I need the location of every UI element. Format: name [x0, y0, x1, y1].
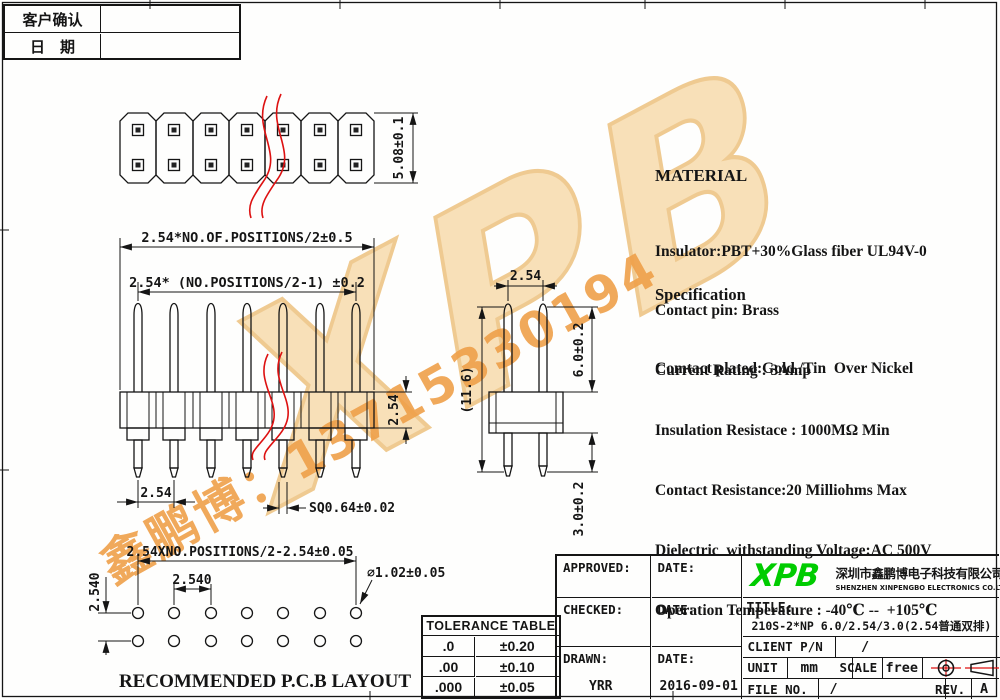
pcb-holes — [133, 608, 362, 647]
scale-label-cell: SCALE — [837, 658, 884, 679]
side-view: 2.54*NO.OF.POSITIONS/2±0.5 2.54* (NO.POS… — [117, 230, 412, 516]
date-label: DATE: — [658, 560, 696, 575]
drawn-cell: DRAWN: YRR — [557, 647, 651, 699]
table-row: .000 ±0.05 — [423, 678, 559, 697]
unit-label: UNIT — [748, 660, 778, 675]
drawn-date-value: 2016-09-01 — [660, 679, 738, 694]
dim-label: 2.54XNO.POSITIONS/2-2.54±0.05 — [127, 545, 354, 560]
company-name-en: SHENZHEN XINPENGBO ELECTRONICS CO.LTD — [836, 584, 996, 592]
tolerance-value: ±0.10 — [476, 657, 560, 677]
spec-line: Current Rating : 3Amp — [655, 361, 1000, 381]
pin-cross-sections — [133, 125, 362, 171]
drawn-value: YRR — [589, 679, 612, 694]
file-no-value: / — [830, 681, 838, 697]
file-no-value-cell: / — [815, 679, 946, 699]
customer-confirm-table: 客户确认 日 期 — [3, 4, 241, 60]
table-row: .00 ±0.10 — [423, 657, 559, 676]
spec-line: Contact Resistance:20 Milliohms Max — [655, 481, 1000, 501]
company-name: 深圳市鑫鹏博电子科技有限公司 SHENZHEN XINPENGBO ELECTR… — [836, 563, 996, 592]
rev-value: A — [980, 681, 988, 697]
dim-label: (11.6) — [460, 367, 475, 414]
approved-cell: APPROVED: — [557, 556, 651, 598]
material-heading: MATERIAL — [655, 166, 1000, 186]
date-label: DATE: — [658, 602, 696, 617]
dim-label: 2.540 — [172, 573, 211, 588]
part-number: 210S-2*NP 6.0/2.54/3.0(2.54普通双排) — [752, 618, 992, 634]
client-pn-label: CLIENT P/N — [748, 639, 823, 654]
dim-label: 6.0±0.2 — [572, 323, 587, 378]
approved-label: APPROVED: — [563, 560, 631, 575]
date-label: 日 期 — [5, 34, 101, 60]
drawn-label: DRAWN: — [563, 651, 608, 666]
dim-label: 2.54 — [140, 486, 171, 501]
client-pn-value: / — [861, 639, 869, 655]
pcb-layout-caption: RECOMMENDED P.C.B LAYOUT — [119, 671, 411, 692]
approved-date-cell: DATE: — [652, 556, 742, 598]
end-view-dims: 2.54 (11.6) 6.0±0.2 3.0±0.2 — [460, 269, 598, 536]
drawn-date-cell: DATE: 2016-09-01 — [652, 647, 742, 699]
file-no-label-cell: FILE NO. — [743, 679, 820, 699]
date-label: DATE: — [658, 651, 696, 666]
table-row: 日 期 — [5, 34, 239, 60]
rev-value-cell: A — [968, 679, 1000, 699]
logo-row: XPB 深圳市鑫鹏博电子科技有限公司 SHENZHEN XINPENGBO EL… — [743, 556, 1000, 598]
checked-label: CHECKED: — [563, 602, 623, 617]
first-angle-projection-icon — [919, 658, 999, 678]
customer-confirm-label: 客户确认 — [5, 6, 101, 32]
dim-label: 3.0±0.2 — [572, 482, 587, 537]
rev-label: REV. — [935, 682, 965, 697]
drawing-sheet: XPB 鑫鹏博：13715330194 — [0, 0, 1000, 700]
pcb-layout: 2.54XNO.POSITIONS/2-2.54±0.05 2.540 2.54… — [88, 545, 445, 692]
rev-label-cell: REV. — [931, 679, 972, 699]
xpb-logo: XPB — [749, 558, 820, 594]
dim-label: 2.54 — [387, 394, 402, 425]
pcb-dims: 2.54XNO.POSITIONS/2-2.54±0.05 2.540 2.54… — [88, 545, 445, 655]
table-row: 客户确认 — [5, 6, 239, 33]
company-name-cn: 深圳市鑫鹏博电子科技有限公司 — [836, 563, 996, 582]
client-pn-label-cell: CLIENT P/N — [743, 637, 836, 658]
scale-value-cell: free — [881, 658, 924, 679]
checked-cell: CHECKED: — [557, 598, 651, 647]
title-block: APPROVED: DATE: CHECKED: DATE: DRAWN: YR… — [555, 554, 999, 699]
tolerance-digits: .000 — [423, 678, 475, 697]
solder-tails — [134, 440, 360, 477]
tolerance-table-title: TOLERANCE TABLE — [423, 617, 559, 636]
specification-heading: Specification — [655, 285, 1000, 305]
client-pn-value-cell: / — [831, 637, 1000, 658]
dim-label: 2.540 — [88, 572, 103, 611]
spec-line: Insulation Resistace : 1000MΩ Min — [655, 421, 1000, 441]
title-label: TITLE: — [747, 601, 794, 616]
tolerance-table: TOLERANCE TABLE .0 ±0.20 .00 ±0.10 .000 … — [421, 615, 561, 699]
material-line: Insulator:PBT+30%Glass fiber UL94V-0 — [655, 242, 1000, 262]
dim-label: 2.54 — [510, 269, 541, 284]
top-view-height-dim: 5.08±0.1 — [374, 113, 418, 183]
dim-label: ∅1.02±0.05 — [367, 566, 445, 581]
scale-value: free — [886, 660, 919, 676]
dim-label: 5.08±0.1 — [392, 117, 407, 180]
tolerance-digits: .0 — [423, 637, 475, 657]
checked-date-cell: DATE: — [652, 598, 742, 647]
top-view: 5.08±0.1 — [120, 94, 418, 218]
tolerance-digits: .00 — [423, 657, 475, 677]
file-no-label: FILE NO. — [748, 682, 808, 697]
title-row: TITLE: 210S-2*NP 6.0/2.54/3.0(2.54普通双排) — [743, 598, 1000, 637]
dim-label: SQ0.64±0.02 — [309, 501, 395, 516]
dim-label: 2.54*NO.OF.POSITIONS/2±0.5 — [141, 230, 352, 246]
dim-label: 2.54* (NO.POSITIONS/2-1) ±0.2 — [129, 275, 365, 291]
tolerance-value: ±0.05 — [476, 678, 560, 697]
unit-value: mm — [801, 660, 818, 676]
unit-label-cell: UNIT — [743, 658, 789, 679]
tolerance-value: ±0.20 — [476, 637, 560, 657]
table-row: .0 ±0.20 — [423, 637, 559, 656]
scale-label: SCALE — [840, 660, 878, 675]
projection-symbol-cell — [919, 658, 1000, 679]
end-view: 2.54 (11.6) 6.0±0.2 3.0±0.2 — [460, 269, 598, 536]
